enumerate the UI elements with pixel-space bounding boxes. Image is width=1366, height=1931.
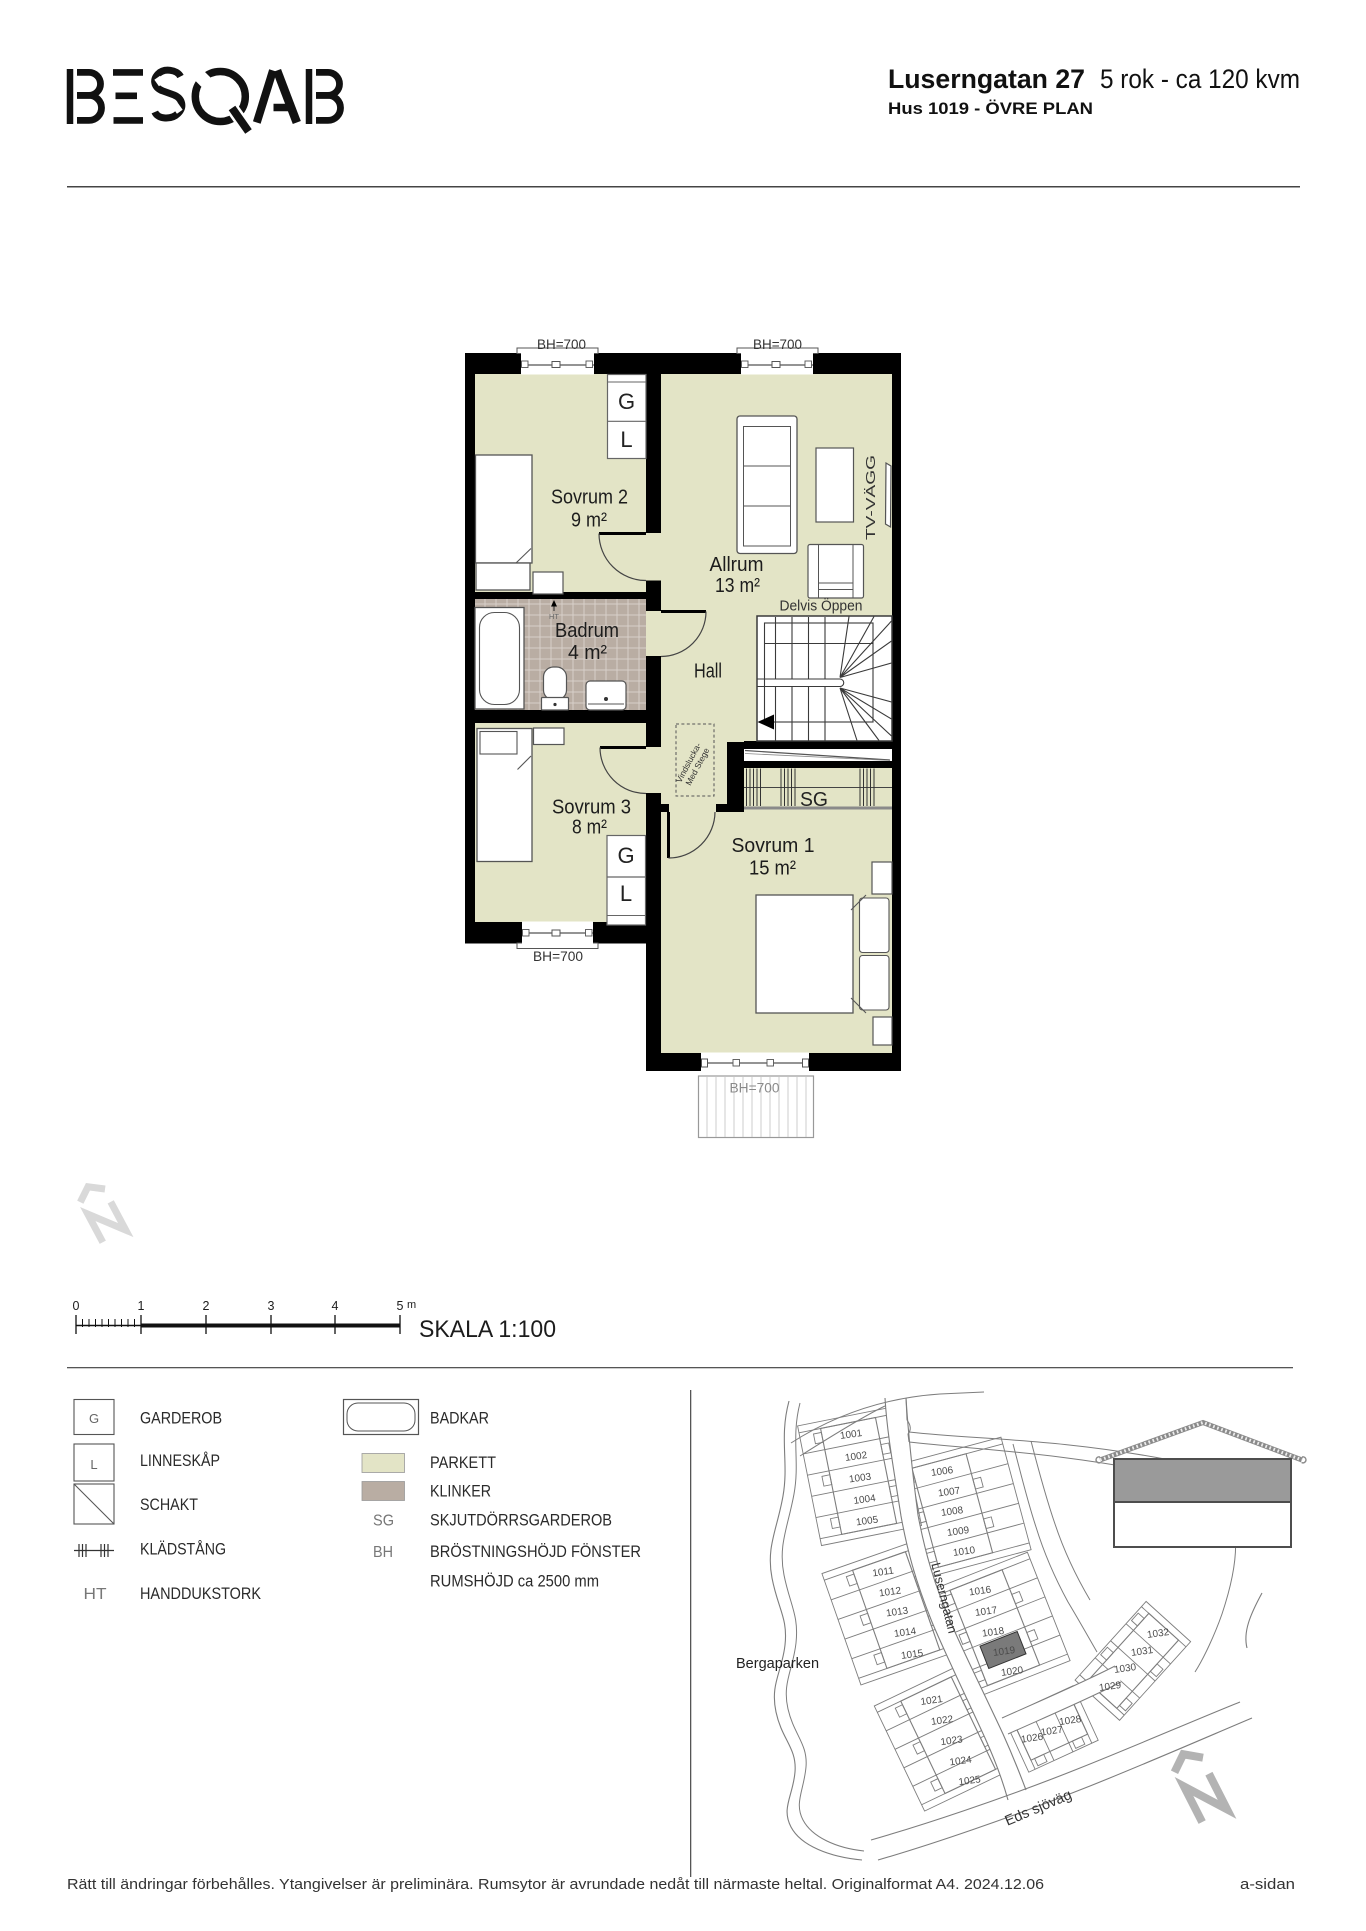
- svg-text:a-sidan: a-sidan: [1240, 1876, 1295, 1893]
- svg-text:SG: SG: [373, 1513, 394, 1530]
- svg-text:Sovrum 2: Sovrum 2: [551, 486, 628, 509]
- svg-text:15 m²: 15 m²: [749, 857, 796, 880]
- svg-text:m: m: [407, 1299, 416, 1311]
- svg-text:Allrum: Allrum: [710, 553, 764, 576]
- svg-text:1001: 1001: [839, 1428, 863, 1442]
- svg-text:9 m²: 9 m²: [571, 509, 607, 532]
- svg-text:1021: 1021: [920, 1694, 944, 1708]
- svg-text:SG: SG: [800, 789, 828, 811]
- svg-text:1020: 1020: [1000, 1665, 1024, 1679]
- svg-text:1004: 1004: [853, 1493, 877, 1507]
- svg-text:1006: 1006: [930, 1465, 954, 1479]
- svg-text:G: G: [89, 1411, 99, 1426]
- svg-text:Luserngatan 27: Luserngatan 27: [888, 64, 1085, 94]
- svg-text:4 m²: 4 m²: [568, 641, 607, 664]
- svg-text:Delvis Öppen: Delvis Öppen: [780, 597, 863, 615]
- svg-text:Hus 1019 - ÖVRE PLAN: Hus 1019 - ÖVRE PLAN: [888, 99, 1093, 118]
- svg-text:5 rok - ca 120 kvm: 5 rok - ca 120 kvm: [1100, 64, 1300, 94]
- svg-text:3: 3: [268, 1299, 275, 1313]
- svg-text:2: 2: [203, 1299, 210, 1313]
- svg-text:BH: BH: [373, 1544, 393, 1561]
- svg-text:1030: 1030: [1113, 1662, 1137, 1676]
- svg-text:Hall: Hall: [694, 660, 722, 683]
- svg-text:1025: 1025: [958, 1774, 982, 1788]
- svg-text:13 m²: 13 m²: [715, 574, 760, 597]
- svg-text:BH=700: BH=700: [537, 337, 586, 352]
- svg-text:BH=700: BH=700: [533, 949, 583, 964]
- svg-text:1007: 1007: [937, 1485, 961, 1499]
- svg-text:BH=700: BH=700: [753, 337, 802, 352]
- svg-text:BH=700: BH=700: [730, 1081, 780, 1096]
- svg-text:SKJUTDÖRRSGARDEROB: SKJUTDÖRRSGARDEROB: [430, 1511, 612, 1530]
- svg-text:1031: 1031: [1130, 1645, 1154, 1659]
- svg-text:Bergaparken: Bergaparken: [736, 1656, 819, 1672]
- svg-text:LINNESKÅP: LINNESKÅP: [140, 1451, 220, 1470]
- svg-text:1009: 1009: [946, 1525, 970, 1539]
- svg-text:L: L: [620, 881, 632, 906]
- svg-text:0: 0: [73, 1299, 80, 1313]
- svg-text:1012: 1012: [878, 1585, 902, 1599]
- svg-text:KLÄDSTÅNG: KLÄDSTÅNG: [140, 1540, 226, 1559]
- svg-text:PARKETT: PARKETT: [430, 1453, 496, 1472]
- svg-text:1002: 1002: [844, 1450, 868, 1464]
- svg-text:G: G: [617, 843, 634, 868]
- svg-text:1015: 1015: [900, 1648, 924, 1662]
- svg-text:KLINKER: KLINKER: [430, 1482, 491, 1501]
- svg-text:1024: 1024: [949, 1754, 973, 1768]
- svg-text:1: 1: [138, 1299, 145, 1313]
- svg-text:1028: 1028: [1059, 1714, 1083, 1728]
- svg-text:SCHAKT: SCHAKT: [140, 1495, 198, 1514]
- svg-text:Badrum: Badrum: [555, 619, 619, 642]
- svg-text:1032: 1032: [1146, 1627, 1170, 1641]
- svg-text:HT: HT: [84, 1586, 107, 1603]
- svg-text:BRÖSTNINGSHÖJD FÖNSTER: BRÖSTNINGSHÖJD FÖNSTER: [430, 1542, 641, 1561]
- svg-text:G: G: [618, 389, 635, 414]
- svg-text:1003: 1003: [848, 1471, 872, 1485]
- svg-text:TV-VÄGG: TV-VÄGG: [863, 455, 878, 540]
- svg-text:1014: 1014: [893, 1626, 917, 1640]
- svg-text:1016: 1016: [968, 1584, 992, 1598]
- svg-text:1005: 1005: [855, 1514, 879, 1528]
- svg-text:1010: 1010: [952, 1545, 976, 1559]
- svg-text:GARDEROB: GARDEROB: [140, 1409, 222, 1428]
- svg-text:8 m²: 8 m²: [572, 816, 607, 839]
- svg-text:Rätt till ändringar förbehålle: Rätt till ändringar förbehålles. Ytangiv…: [67, 1876, 1044, 1893]
- svg-text:L: L: [620, 427, 632, 452]
- svg-text:Sovrum 1: Sovrum 1: [732, 834, 815, 857]
- svg-text:1023: 1023: [940, 1734, 964, 1748]
- svg-text:BADKAR: BADKAR: [430, 1409, 489, 1428]
- svg-text:5: 5: [397, 1299, 404, 1313]
- svg-text:1029: 1029: [1098, 1680, 1122, 1694]
- svg-text:1008: 1008: [940, 1505, 964, 1519]
- svg-text:RUMSHÖJD ca 2500 mm: RUMSHÖJD ca 2500 mm: [430, 1572, 599, 1591]
- svg-text:4: 4: [332, 1299, 339, 1313]
- svg-text:SKALA 1:100: SKALA 1:100: [419, 1316, 556, 1343]
- svg-text:L: L: [90, 1457, 97, 1472]
- svg-text:HANDDUKSTORK: HANDDUKSTORK: [140, 1584, 262, 1603]
- svg-text:1022: 1022: [930, 1714, 954, 1728]
- svg-text:1011: 1011: [872, 1565, 895, 1579]
